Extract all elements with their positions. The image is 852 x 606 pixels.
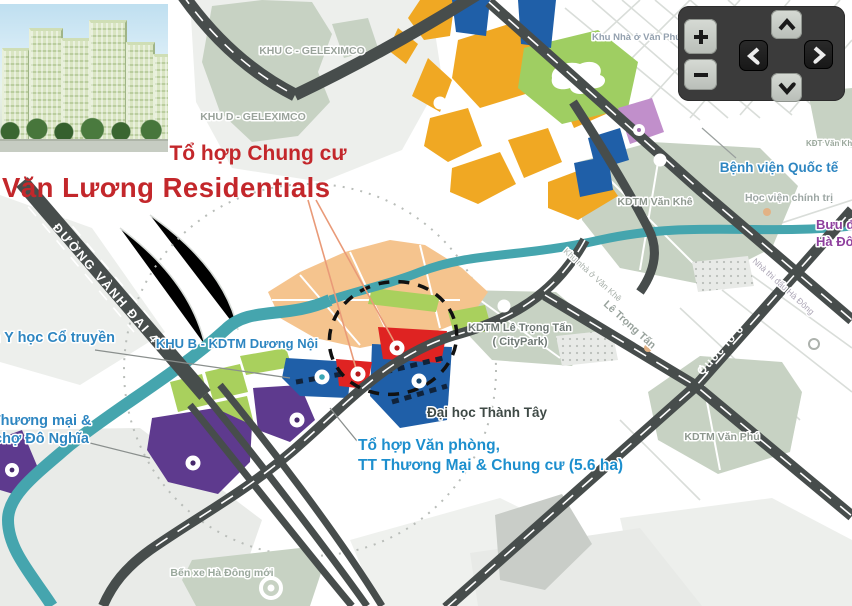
map-viewer: Tổ hợp Chung cư Văn Lương Residentials K… (0, 0, 852, 606)
map-controls-panel (678, 6, 845, 101)
label-dai-hoc: Đại học Thành Tây (427, 405, 548, 420)
label-vien-y-hoc: Viện Y học Cổ truyền (0, 330, 115, 346)
chevron-left-icon (746, 46, 762, 66)
label-buu-dien-2: Hà Đông (816, 234, 852, 249)
chevron-up-icon (777, 17, 797, 33)
label-ben-xe: Bến xe Hà Đông mới (170, 567, 273, 579)
label-khu-c: KHU C - GELEXIMCO (259, 45, 365, 57)
label-khu-d: KHU D - GELEXIMCO (200, 111, 306, 123)
label-tt-thuong-mai-1: TT Thương mại & (0, 413, 92, 429)
title-subtitle: Tổ hợp Chung cư (169, 142, 347, 165)
label-kdt-top-right: KĐT Văn Khê (806, 139, 852, 148)
street-foreground (0, 139, 168, 152)
pan-down-button[interactable] (771, 73, 802, 102)
label-office-1: Tổ hợp Văn phòng, (358, 437, 500, 454)
plus-icon (691, 27, 711, 47)
zoom-in-button[interactable] (684, 19, 717, 54)
minus-icon (691, 65, 711, 85)
label-benh-vien: Bệnh viện Quốc tế (720, 160, 839, 175)
zoom-out-button[interactable] (684, 59, 717, 90)
pan-right-button[interactable] (804, 40, 833, 69)
project-photo (0, 4, 168, 152)
label-hoc-vien: Học viện chính trị (745, 192, 833, 204)
title-main: Văn Lương Residentials (2, 172, 331, 203)
label-kdtm-van-phu: KDTM Văn Phú (684, 431, 759, 443)
chevron-right-icon (811, 45, 827, 65)
label-kdtm-van-khe: KDTM Văn Khê (617, 196, 692, 208)
pan-up-button[interactable] (771, 10, 802, 39)
label-tt-thuong-mai-2: chợ Đô Nghĩa (0, 431, 90, 447)
label-buu-dien-1: Bưu điện (816, 217, 852, 232)
label-office-2: TT Thương Mại & Chung cư (5.6 ha) (358, 457, 623, 474)
chevron-down-icon (777, 80, 797, 96)
pan-left-button[interactable] (739, 40, 768, 71)
label-le-trong-tan-zone-2: ( CityPark) (492, 336, 547, 348)
label-le-trong-tan-zone-1: KDTM Lê Trọng Tấn (468, 322, 572, 334)
label-khu-b: KHU B - KDTM Dương Nội (156, 336, 318, 351)
label-khu-van-phu-top: Khu Nhà ở Văn Phú (592, 32, 681, 43)
